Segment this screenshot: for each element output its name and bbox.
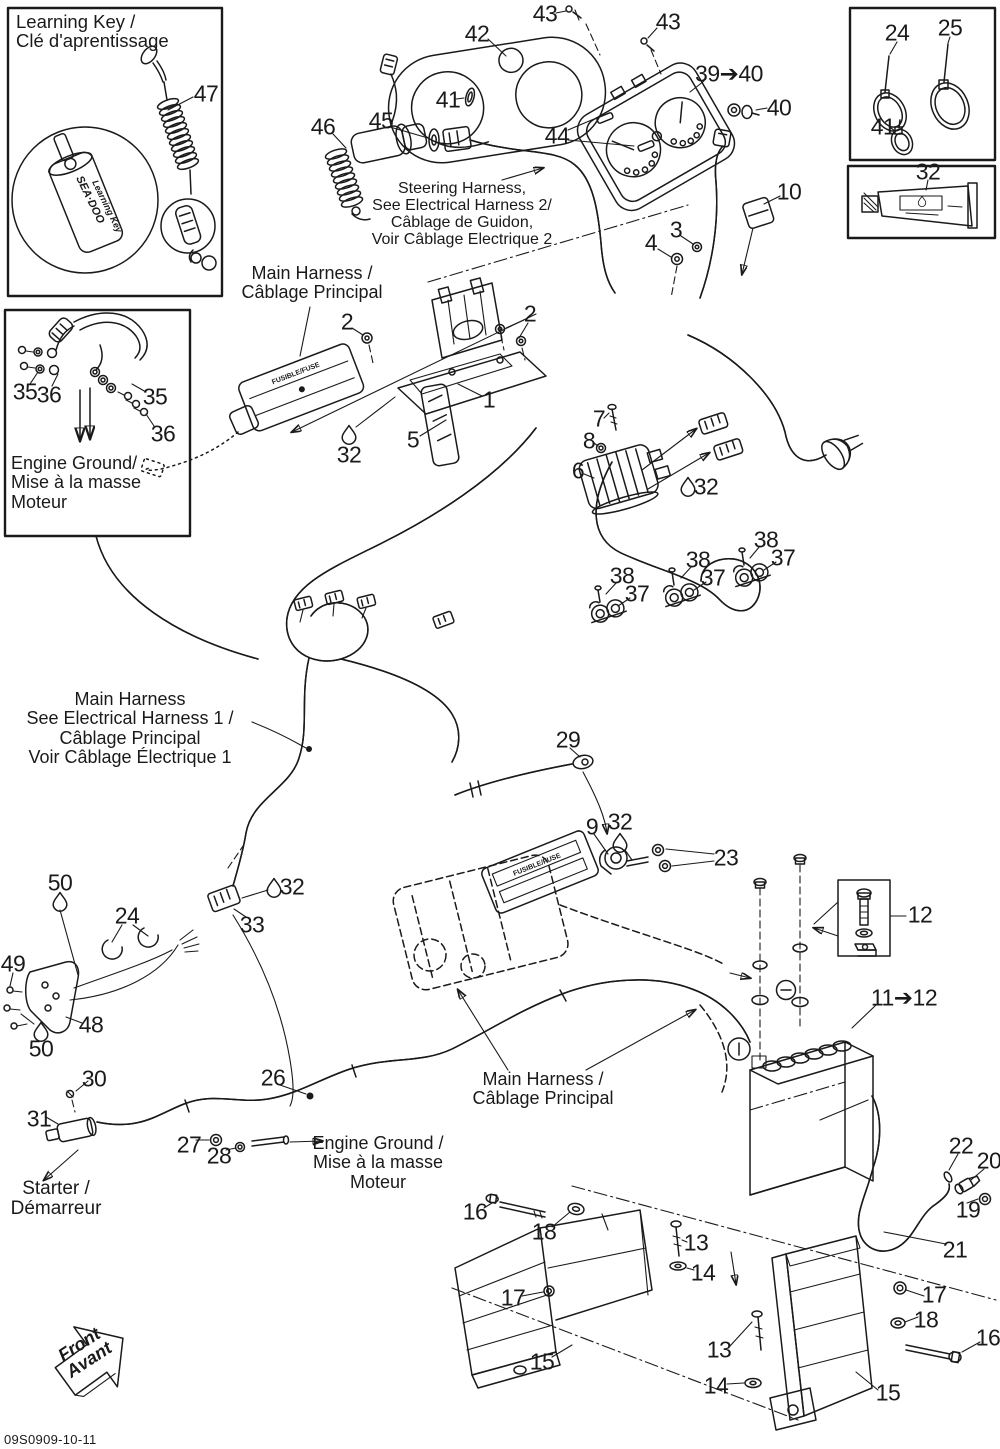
callout-44: 44 — [545, 123, 570, 150]
callout-10: 10 — [777, 179, 802, 206]
callout-9: 9 — [586, 814, 598, 841]
callout-48: 48 — [79, 1012, 104, 1039]
callout-16-left: 16 — [463, 1199, 488, 1226]
callout-17-right: 17 — [922, 1282, 947, 1309]
callout-29: 29 — [556, 727, 581, 754]
tray-right-art — [770, 1236, 872, 1430]
callout-33: 33 — [240, 912, 265, 939]
callout-32-solenoid: 32 — [608, 809, 633, 836]
callout-8: 8 — [583, 428, 595, 455]
callout-22: 22 — [949, 1133, 974, 1160]
starter-note: Starter / Démarreur — [0, 1179, 112, 1220]
main-harness-bottom-note: Main Harness / Câblage Principal — [443, 1070, 643, 1109]
callout-41-gauge: 41 — [436, 87, 461, 114]
callout-14-left: 14 — [691, 1260, 716, 1287]
callout-1: 1 — [483, 387, 495, 414]
callout-12: 12 — [908, 902, 933, 929]
callout-24-box: 24 — [885, 20, 910, 47]
callout-50-bottom: 50 — [29, 1036, 54, 1063]
callout-13-right: 13 — [707, 1337, 732, 1364]
callout-32-tube: 32 — [916, 159, 941, 186]
callout-32-regulator: 32 — [694, 474, 719, 501]
battery-art — [728, 855, 876, 1196]
callout-37-a: 37 — [625, 581, 650, 608]
callout-14-right: 14 — [704, 1373, 729, 1400]
learning-key-title-line2: Clé d'aprentissage — [16, 31, 169, 50]
callout-15-right: 15 — [876, 1380, 901, 1407]
harness-connector-end — [817, 424, 868, 473]
callout-24-mid: 24 — [115, 903, 140, 930]
callout-23: 23 — [714, 845, 739, 872]
callout-28: 28 — [207, 1143, 232, 1170]
callout-35-left: 35 — [13, 379, 38, 406]
callout-50-top: 50 — [48, 870, 73, 897]
solenoid-art — [600, 845, 671, 875]
main-harness-top-note: Main Harness / Câblage Principal — [212, 264, 412, 303]
fuse-box-2-art: FUSIBLE/FUSE — [480, 829, 600, 915]
callout-32-plate: 32 — [337, 442, 362, 469]
main-harness-left-note: Main Harness See Electrical Harness 1 / … — [5, 690, 255, 767]
steering-harness-note: Steering Harness, See Electrical Harness… — [357, 180, 567, 248]
callout-18-left: 18 — [532, 1219, 557, 1246]
callout-18-right: 18 — [914, 1307, 939, 1334]
callout-43-right: 43 — [656, 9, 681, 36]
callout-45: 45 — [369, 108, 394, 135]
callout-41-box: 41 — [871, 114, 896, 141]
callout-49: 49 — [1, 951, 26, 978]
parts-diagram-electrical-system: SEA·DOO Learning Key — [0, 0, 1000, 1449]
callout-4: 4 — [645, 230, 657, 257]
callout-30: 30 — [82, 1066, 107, 1093]
callout-40: 40 — [767, 95, 792, 122]
callout-21: 21 — [943, 1237, 968, 1264]
callout-36-right: 36 — [151, 421, 176, 448]
callout-32-conn: 32 — [280, 874, 305, 901]
callout-17-left: 17 — [501, 1285, 526, 1312]
callout-47: 47 — [194, 81, 219, 108]
callout-31: 31 — [27, 1106, 52, 1133]
learning-key-title-line1: Learning Key / — [16, 12, 169, 31]
engine-ground-inset-art — [19, 313, 155, 440]
bracket-plate-art — [420, 383, 459, 466]
callout-19: 19 — [956, 1197, 981, 1224]
learning-key-title: Learning Key / Clé d'aprentissage — [16, 12, 169, 51]
callout-35-right: 35 — [143, 384, 168, 411]
callout-2-right: 2 — [524, 301, 536, 328]
callout-26: 26 — [261, 1065, 286, 1092]
callout-27: 27 — [177, 1132, 202, 1159]
engine-ground-bottom-note: Engine Ground / Mise à la masse Moteur — [288, 1134, 468, 1192]
callout-46: 46 — [311, 114, 336, 141]
callout-3: 3 — [670, 217, 682, 244]
callout-37-b: 37 — [701, 565, 726, 592]
callout-6: 6 — [572, 458, 584, 485]
callout-16-right: 16 — [976, 1325, 1000, 1352]
callout-15-left: 15 — [530, 1349, 555, 1376]
callout-36-left: 36 — [37, 382, 62, 409]
electrical-module-art — [398, 278, 546, 414]
engine-ground-inset-caption: Engine Ground/ Mise à la masse Moteur — [11, 454, 183, 512]
callout-37-c: 37 — [771, 545, 796, 572]
callout-39-40: 39➔40 — [695, 61, 763, 88]
callout-13-left: 13 — [684, 1230, 709, 1257]
callout-42: 42 — [465, 21, 490, 48]
learning-key-art: SEA·DOO Learning Key — [12, 43, 216, 273]
callout-11-12: 11➔12 — [871, 985, 937, 1012]
callout-43-left: 43 — [533, 1, 558, 28]
callout-2-left: 2 — [341, 309, 353, 336]
sealant-tube-art — [862, 180, 977, 228]
callout-5: 5 — [407, 427, 419, 454]
callout-20: 20 — [977, 1148, 1000, 1175]
engine-ghost-art — [390, 852, 727, 1092]
hardware-12-art — [814, 889, 906, 956]
document-code: 09S0909-10-11 — [4, 1432, 97, 1447]
callout-25-box: 25 — [938, 15, 963, 42]
